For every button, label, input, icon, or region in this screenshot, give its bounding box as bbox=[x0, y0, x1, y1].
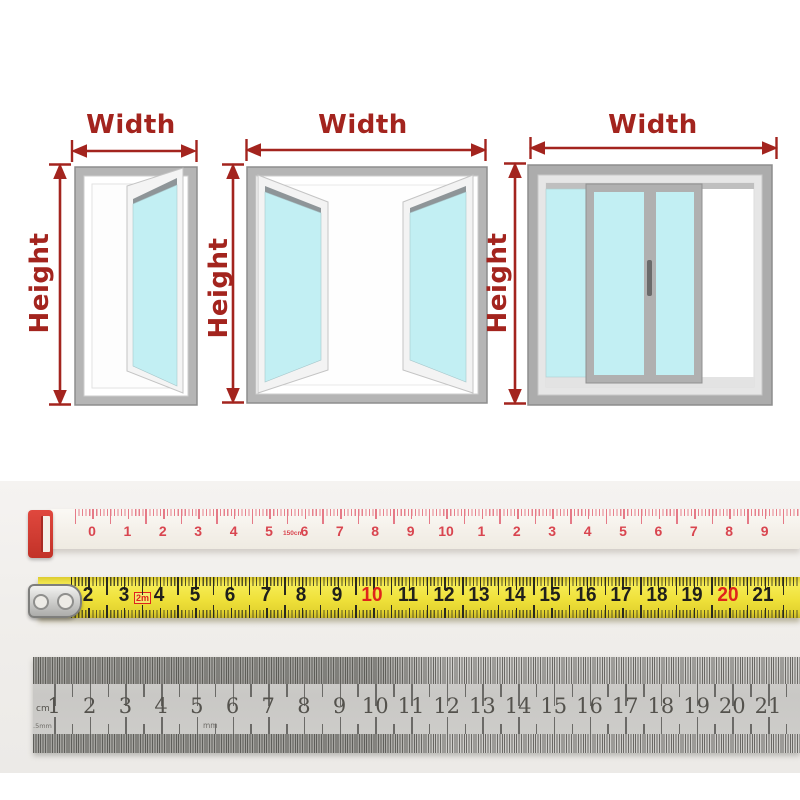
tape-number: 7 bbox=[690, 523, 698, 539]
hook-hole bbox=[33, 594, 49, 610]
cm-tick bbox=[304, 717, 306, 734]
width-label-1: Width bbox=[66, 109, 196, 141]
tape-number: 16 bbox=[575, 584, 596, 607]
ruler-halfmm-label: .5mm bbox=[33, 722, 52, 730]
cm-tick bbox=[106, 605, 108, 618]
ruler-number: 21 bbox=[755, 694, 782, 718]
cm-tick bbox=[464, 509, 466, 524]
cm-tick bbox=[249, 577, 251, 595]
ruler-number: 15 bbox=[540, 694, 567, 718]
tape-number: 14 bbox=[504, 584, 525, 607]
half-cm-tick bbox=[231, 608, 233, 618]
tape-number: 6 bbox=[654, 523, 662, 539]
half-millimeter-scale-band bbox=[33, 657, 800, 684]
cm-tick bbox=[676, 577, 678, 595]
half-cm-tick bbox=[551, 608, 553, 618]
half-cm-tick bbox=[322, 684, 324, 697]
half-cm-tick bbox=[765, 509, 767, 519]
half-cm-tick bbox=[429, 684, 431, 697]
hook-hole bbox=[57, 593, 74, 610]
cm-tick bbox=[411, 717, 413, 734]
tape-number: 13 bbox=[468, 584, 489, 607]
tape-number: 18 bbox=[646, 584, 667, 607]
half-cm-tick bbox=[72, 724, 74, 734]
width-label-3: Width bbox=[588, 109, 718, 141]
half-cm-tick bbox=[322, 724, 324, 734]
tape-number: 8 bbox=[371, 523, 379, 539]
tape-number: 10 bbox=[362, 584, 383, 607]
tape-number: 0 bbox=[88, 523, 96, 539]
cm-tick bbox=[535, 509, 537, 524]
cm-tick bbox=[355, 605, 357, 618]
cm-tick bbox=[429, 509, 431, 524]
half-cm-tick bbox=[572, 684, 574, 697]
tape-number: 19 bbox=[682, 584, 703, 607]
yellow-tape-body: 2m 23456789101112131415161718192021 bbox=[38, 577, 800, 618]
cm-tick bbox=[711, 605, 713, 618]
tape-number: 2 bbox=[513, 523, 521, 539]
cm-tick bbox=[676, 509, 678, 524]
half-cm-tick bbox=[643, 684, 645, 697]
cm-tick bbox=[375, 717, 377, 734]
half-cm-tick bbox=[215, 684, 217, 697]
double-casement-window bbox=[200, 100, 500, 420]
half-cm-tick bbox=[179, 684, 181, 697]
cm-tick bbox=[569, 577, 571, 595]
tape-end-hook bbox=[28, 584, 82, 618]
tape-number: 5 bbox=[619, 523, 627, 539]
tape-number: 3 bbox=[118, 584, 129, 607]
ruler-number: 18 bbox=[648, 694, 675, 718]
ruler-number: 13 bbox=[469, 694, 496, 718]
cm-tick bbox=[358, 509, 360, 524]
cm-tick bbox=[482, 717, 484, 734]
measure-guide-image: Width Width Width Height Height Height 1… bbox=[0, 0, 800, 800]
cm-tick bbox=[747, 509, 749, 524]
cm-tick bbox=[287, 509, 289, 524]
tape-number: 9 bbox=[332, 584, 343, 607]
half-cm-tick bbox=[250, 724, 252, 734]
cm-tick bbox=[177, 577, 179, 595]
cm-tick bbox=[106, 577, 108, 595]
half-cm-tick bbox=[198, 509, 200, 519]
half-cm-tick bbox=[444, 608, 446, 618]
half-cm-tick bbox=[714, 684, 716, 697]
half-cm-tick bbox=[658, 608, 660, 618]
half-cm-tick bbox=[215, 724, 217, 734]
cm-tick bbox=[391, 577, 393, 595]
tape-number: 4 bbox=[154, 584, 165, 607]
ruler-number: 12 bbox=[433, 694, 460, 718]
ruler-number: 17 bbox=[612, 694, 639, 718]
cm-tick bbox=[498, 605, 500, 618]
ruler-number: 14 bbox=[505, 694, 532, 718]
cm-tick bbox=[142, 577, 144, 595]
cm-tick bbox=[322, 509, 324, 524]
right-glass-pane bbox=[410, 192, 466, 382]
cm-tick bbox=[340, 717, 342, 734]
cm-tick bbox=[606, 509, 608, 524]
cm-tick bbox=[320, 577, 322, 595]
cm-tick bbox=[462, 605, 464, 618]
cm-tick bbox=[110, 509, 112, 524]
height-label-1: Height bbox=[25, 228, 55, 338]
half-cm-tick bbox=[729, 608, 731, 618]
half-cm-tick bbox=[500, 724, 502, 734]
half-cm-tick bbox=[622, 608, 624, 618]
cm-tick bbox=[447, 717, 449, 734]
half-cm-tick bbox=[765, 608, 767, 618]
half-cm-tick bbox=[516, 608, 518, 618]
half-cm-tick bbox=[500, 684, 502, 697]
half-cm-tick bbox=[409, 608, 411, 618]
cm-tick bbox=[284, 577, 286, 595]
half-cm-tick bbox=[465, 724, 467, 734]
tape-number: 10 bbox=[438, 523, 454, 539]
sash-glass-left bbox=[594, 192, 644, 375]
tape-number: 11 bbox=[398, 584, 418, 607]
cm-tick bbox=[181, 509, 183, 524]
ruler-number: 16 bbox=[576, 694, 603, 718]
cm-tick bbox=[213, 605, 215, 618]
ruler-number: 6 bbox=[226, 694, 239, 718]
tape-number: 21 bbox=[753, 584, 774, 607]
half-cm-tick bbox=[286, 724, 288, 734]
width-label-2: Width bbox=[298, 109, 428, 141]
half-cm-tick bbox=[411, 509, 413, 519]
half-cm-tick bbox=[302, 608, 304, 618]
half-cm-tick bbox=[143, 684, 145, 697]
tape-number: 12 bbox=[433, 584, 454, 607]
cm-tick bbox=[125, 717, 127, 734]
sliding-window bbox=[480, 100, 800, 420]
cm-tick bbox=[462, 577, 464, 595]
tape-number: 5 bbox=[189, 584, 200, 607]
sash-handle bbox=[647, 260, 652, 296]
millimeter-ticks-bottom bbox=[71, 610, 800, 618]
tape-number: 6 bbox=[225, 584, 236, 607]
ruler-number: 7 bbox=[262, 694, 275, 718]
cm-tick bbox=[533, 577, 535, 595]
cm-tick bbox=[54, 717, 56, 734]
half-cm-tick bbox=[588, 509, 590, 519]
glass-pane bbox=[133, 185, 177, 386]
cm-tick bbox=[249, 605, 251, 618]
tape-number: 5 bbox=[265, 523, 273, 539]
cm-tick bbox=[320, 605, 322, 618]
tape-number: 9 bbox=[407, 523, 415, 539]
cm-tick bbox=[499, 509, 501, 524]
cm-tick bbox=[498, 577, 500, 595]
half-cm-tick bbox=[286, 684, 288, 697]
cm-tick bbox=[783, 577, 785, 595]
cm-tick bbox=[570, 509, 572, 524]
ruler-number: 11 bbox=[398, 694, 425, 718]
half-cm-tick bbox=[446, 509, 448, 519]
tape-number: 6 bbox=[300, 523, 308, 539]
half-cm-tick bbox=[694, 608, 696, 618]
half-cm-tick bbox=[643, 724, 645, 734]
cm-tick bbox=[177, 605, 179, 618]
half-cm-tick bbox=[266, 608, 268, 618]
ruler-number: 10 bbox=[362, 694, 389, 718]
cm-tick bbox=[427, 577, 429, 595]
half-cm-tick bbox=[729, 509, 731, 519]
tape-number: 9 bbox=[761, 523, 769, 539]
half-cm-tick bbox=[393, 684, 395, 697]
ruler-number: 19 bbox=[683, 694, 710, 718]
cm-tick bbox=[768, 717, 770, 734]
cm-tick bbox=[427, 605, 429, 618]
half-cm-tick bbox=[607, 684, 609, 697]
cm-tick bbox=[161, 717, 163, 734]
half-cm-tick bbox=[143, 724, 145, 734]
ruler-number: 20 bbox=[719, 694, 746, 718]
half-cm-tick bbox=[340, 509, 342, 519]
half-cm-tick bbox=[429, 724, 431, 734]
half-cm-tick bbox=[357, 724, 359, 734]
height-label-2: Height bbox=[204, 233, 234, 343]
cm-tick bbox=[732, 717, 734, 734]
half-cm-tick bbox=[195, 608, 197, 618]
steel-tape-measure: 2m 23456789101112131415161718192021 bbox=[30, 577, 800, 619]
cm-tick bbox=[605, 577, 607, 595]
half-cm-tick bbox=[179, 724, 181, 734]
tape-number: 8 bbox=[296, 584, 307, 607]
half-cm-tick bbox=[338, 608, 340, 618]
half-cm-tick bbox=[679, 684, 681, 697]
cm-tick bbox=[233, 717, 235, 734]
tape-number: 1 bbox=[123, 523, 131, 539]
half-cm-tick bbox=[786, 684, 788, 697]
ruler-number: 3 bbox=[119, 694, 132, 718]
half-cm-tick bbox=[160, 608, 162, 618]
half-cm-tick bbox=[607, 724, 609, 734]
cm-tick bbox=[640, 577, 642, 595]
half-cm-tick bbox=[679, 724, 681, 734]
half-cm-tick bbox=[536, 724, 538, 734]
half-cm-tick bbox=[305, 509, 307, 519]
cm-tick bbox=[268, 717, 270, 734]
tape-number: 7 bbox=[260, 584, 271, 607]
half-cm-tick bbox=[552, 509, 554, 519]
half-cm-tick bbox=[357, 684, 359, 697]
cm-tick bbox=[252, 509, 254, 524]
cm-tick bbox=[554, 717, 556, 734]
cm-tick bbox=[533, 605, 535, 618]
half-cm-tick bbox=[128, 509, 130, 519]
width-arrow bbox=[71, 140, 197, 162]
half-cm-tick bbox=[375, 509, 377, 519]
half-cm-tick bbox=[269, 509, 271, 519]
cm-tick bbox=[393, 509, 395, 524]
half-cm-tick bbox=[124, 608, 126, 618]
cm-tick bbox=[783, 509, 785, 524]
cm-tick bbox=[605, 605, 607, 618]
half-cm-tick bbox=[108, 684, 110, 697]
soft-tape-body: 150cm 012345678910123456789 bbox=[50, 509, 800, 549]
ruler-number: 1 bbox=[47, 694, 60, 718]
half-cm-tick bbox=[714, 724, 716, 734]
ruler-number: 8 bbox=[297, 694, 310, 718]
cm-tick bbox=[197, 717, 199, 734]
half-cm-tick bbox=[250, 684, 252, 697]
half-cm-tick bbox=[88, 608, 90, 618]
cm-tick bbox=[391, 605, 393, 618]
cm-tick bbox=[284, 605, 286, 618]
tape-number: 8 bbox=[725, 523, 733, 539]
fixed-glass-pane bbox=[546, 189, 586, 377]
cm-tick bbox=[142, 605, 144, 618]
cm-tick bbox=[90, 717, 92, 734]
cm-tick bbox=[213, 577, 215, 595]
tape-number: 15 bbox=[540, 584, 561, 607]
half-cm-tick bbox=[393, 724, 395, 734]
millimeter-ticks bbox=[75, 509, 800, 516]
cm-tick bbox=[747, 577, 749, 595]
cm-tick bbox=[75, 509, 77, 524]
clip-slot bbox=[41, 516, 50, 552]
tape-number: 17 bbox=[611, 584, 632, 607]
ruler-number: 4 bbox=[154, 694, 167, 718]
tape-number: 1 bbox=[477, 523, 485, 539]
cm-tick bbox=[641, 509, 643, 524]
half-cm-tick bbox=[480, 608, 482, 618]
half-cm-tick bbox=[694, 509, 696, 519]
half-cm-tick bbox=[659, 509, 661, 519]
cm-tick bbox=[625, 717, 627, 734]
half-cm-tick bbox=[72, 684, 74, 697]
tape-number: 2 bbox=[83, 584, 94, 607]
half-cm-tick bbox=[482, 509, 484, 519]
cm-tick bbox=[712, 509, 714, 524]
half-cm-tick bbox=[750, 724, 752, 734]
half-cm-tick bbox=[572, 724, 574, 734]
half-cm-tick bbox=[623, 509, 625, 519]
half-cm-tick bbox=[108, 724, 110, 734]
half-cm-tick bbox=[465, 684, 467, 697]
left-glass-pane bbox=[265, 192, 321, 382]
tape-number: 2 bbox=[159, 523, 167, 539]
cm-tick bbox=[355, 577, 357, 595]
cm-tick bbox=[518, 717, 520, 734]
half-cm-tick bbox=[92, 509, 94, 519]
half-cm-tick bbox=[163, 509, 165, 519]
width-arrow bbox=[245, 139, 487, 161]
cm-tick bbox=[569, 605, 571, 618]
cm-tick bbox=[640, 605, 642, 618]
cm-tick bbox=[661, 717, 663, 734]
ruler-number: 5 bbox=[190, 694, 203, 718]
millimeter-scale-band bbox=[33, 734, 800, 753]
half-cm-tick bbox=[750, 684, 752, 697]
tape-number: 20 bbox=[717, 584, 738, 607]
soft-measuring-tape: 150cm 012345678910123456789 bbox=[30, 508, 800, 554]
cm-tick bbox=[711, 577, 713, 595]
tape-number: 4 bbox=[230, 523, 238, 539]
half-cm-tick bbox=[373, 608, 375, 618]
cm-tick bbox=[216, 509, 218, 524]
half-cm-tick bbox=[786, 724, 788, 734]
tape-number: 3 bbox=[194, 523, 202, 539]
ruler-number: 2 bbox=[83, 694, 96, 718]
cm-tick bbox=[145, 509, 147, 524]
cm-tick bbox=[747, 605, 749, 618]
height-label-3: Height bbox=[483, 228, 513, 338]
cm-tick bbox=[697, 717, 699, 734]
steel-ruler: cm .5mm mm 12345678910111213141516171819… bbox=[33, 657, 800, 753]
half-cm-tick bbox=[536, 684, 538, 697]
ruler-number: 9 bbox=[333, 694, 346, 718]
cm-tick bbox=[783, 605, 785, 618]
sash-glass-right bbox=[656, 192, 694, 375]
cm-tick bbox=[590, 717, 592, 734]
tape-end-clip bbox=[28, 510, 53, 558]
tape-number: 4 bbox=[584, 523, 592, 539]
half-cm-tick bbox=[587, 608, 589, 618]
cm-tick bbox=[676, 605, 678, 618]
tape-number: 7 bbox=[336, 523, 344, 539]
half-cm-tick bbox=[234, 509, 236, 519]
tape-number: 3 bbox=[548, 523, 556, 539]
half-cm-tick bbox=[517, 509, 519, 519]
